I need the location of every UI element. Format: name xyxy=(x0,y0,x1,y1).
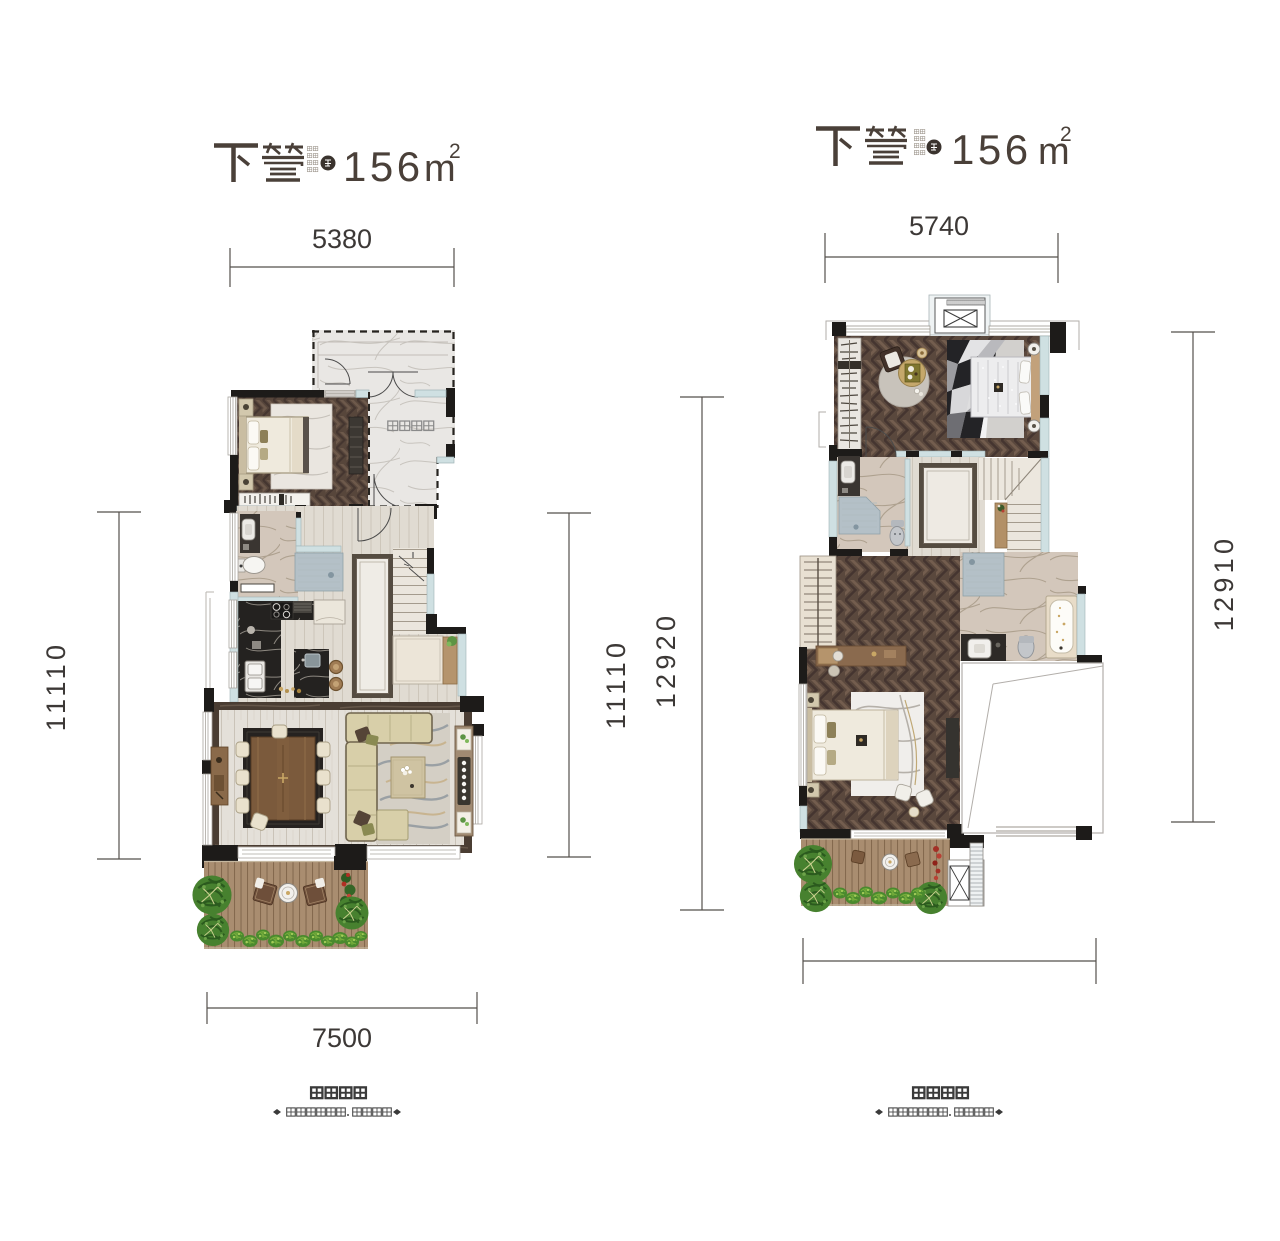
svg-text:5380: 5380 xyxy=(312,224,372,254)
svg-text:11110: 11110 xyxy=(41,641,71,732)
svg-text:5740: 5740 xyxy=(909,211,969,241)
svg-text:2: 2 xyxy=(1060,123,1072,146)
svg-text:7500: 7500 xyxy=(312,1023,372,1053)
svg-text:12920: 12920 xyxy=(651,612,681,709)
svg-text:12910: 12910 xyxy=(1209,535,1239,632)
svg-text:11110: 11110 xyxy=(601,639,631,730)
svg-text:2: 2 xyxy=(449,140,461,163)
svg-text:156: 156 xyxy=(951,126,1032,173)
svg-text:156: 156 xyxy=(343,143,424,190)
